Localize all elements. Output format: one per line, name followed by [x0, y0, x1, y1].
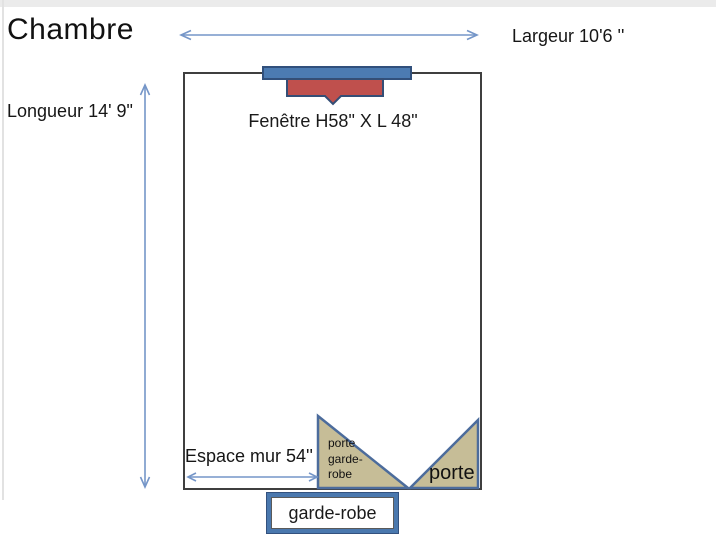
closet-door-label: porte garde- robe — [328, 436, 363, 483]
floor-plan-canvas: Chambre Largeur 10'6 '' Longueur 14' 9" … — [0, 0, 716, 553]
entry-door-label: porte — [429, 462, 475, 485]
window-shape — [284, 76, 386, 108]
width-dimension-arrow — [176, 29, 482, 41]
page-top-edge — [0, 0, 716, 7]
closet-box: garde-robe — [266, 492, 399, 534]
length-dimension-arrow — [139, 80, 151, 492]
wall-space-dimension-arrow — [184, 471, 321, 483]
page-left-edge — [2, 0, 4, 500]
window-label: Fenêtre H58" X L 48" — [230, 111, 436, 132]
width-dimension-label: Largeur 10'6 '' — [512, 26, 624, 47]
length-dimension-label: Longueur 14' 9" — [7, 101, 133, 122]
closet-label: garde-robe — [271, 497, 394, 529]
page-title: Chambre — [7, 13, 134, 47]
wall-space-label: Espace mur 54'' — [185, 446, 313, 467]
